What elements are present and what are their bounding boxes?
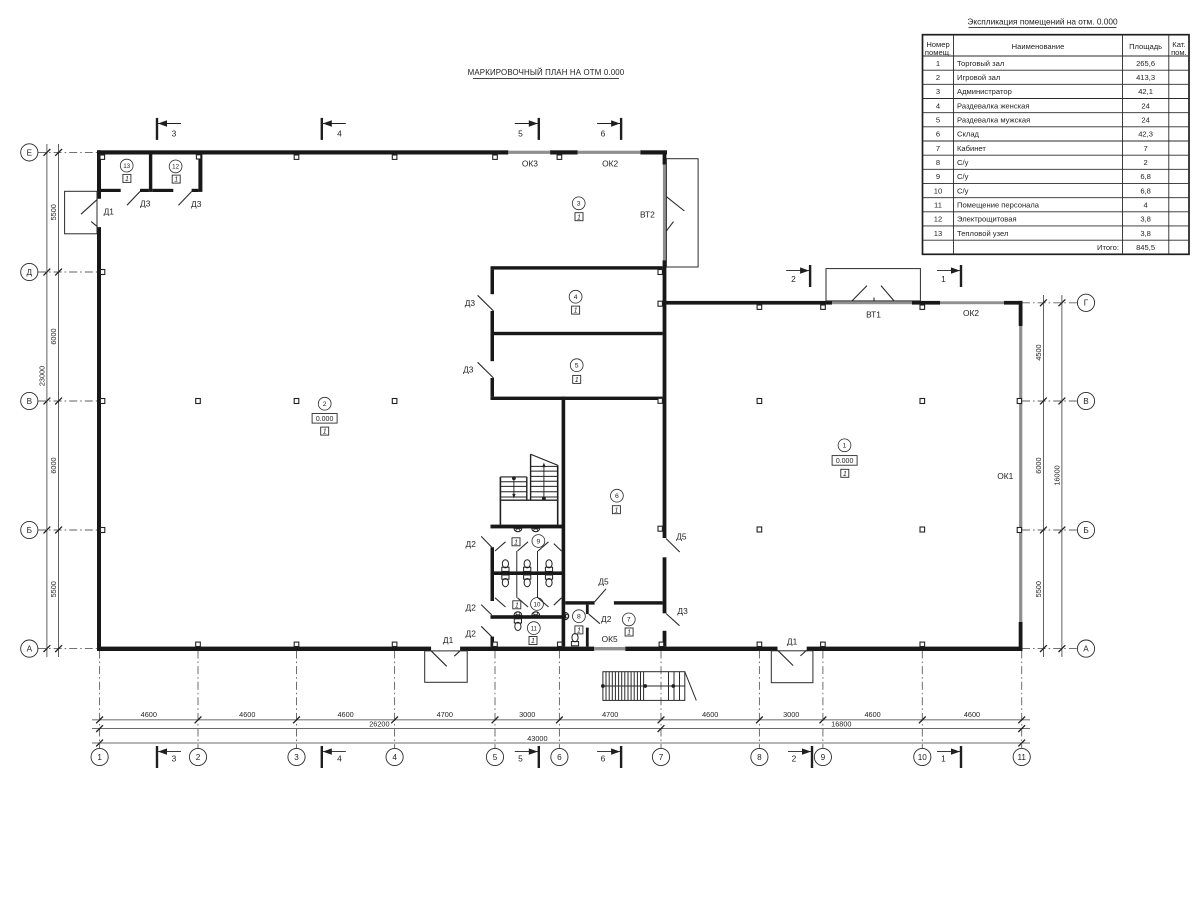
svg-text:3: 3 <box>294 753 299 762</box>
svg-text:13: 13 <box>123 163 130 170</box>
svg-text:ОК1: ОК1 <box>997 471 1013 481</box>
svg-text:4: 4 <box>936 101 940 110</box>
svg-text:1: 1 <box>941 274 946 284</box>
svg-text:6000: 6000 <box>1034 457 1043 473</box>
svg-text:С/у: С/у <box>957 172 969 181</box>
svg-text:24: 24 <box>1141 101 1149 110</box>
svg-text:23000: 23000 <box>37 366 46 386</box>
svg-text:4600: 4600 <box>337 710 353 719</box>
svg-text:Д2: Д2 <box>601 614 612 624</box>
svg-text:Кабинет: Кабинет <box>957 144 986 153</box>
svg-text:пом.: пом. <box>1171 48 1187 57</box>
svg-text:Тепловой узел: Тепловой узел <box>957 229 1008 238</box>
svg-text:Д3: Д3 <box>465 298 476 308</box>
svg-text:Администратор: Администратор <box>957 87 1012 96</box>
svg-text:12: 12 <box>934 215 942 224</box>
svg-text:Д3: Д3 <box>463 364 474 374</box>
svg-text:6: 6 <box>601 129 606 139</box>
svg-text:Б: Б <box>27 526 32 535</box>
svg-text:Площадь: Площадь <box>1129 42 1162 51</box>
svg-text:5: 5 <box>575 363 579 370</box>
svg-text:413,3: 413,3 <box>1136 73 1155 82</box>
svg-text:7: 7 <box>1143 144 1147 153</box>
svg-text:16800: 16800 <box>831 719 851 728</box>
svg-text:7: 7 <box>936 144 940 153</box>
svg-text:3: 3 <box>577 201 581 208</box>
svg-text:11: 11 <box>1017 753 1026 762</box>
svg-text:4600: 4600 <box>864 710 880 719</box>
svg-text:Торговый зал: Торговый зал <box>957 59 1004 68</box>
svg-text:6: 6 <box>601 754 606 764</box>
svg-text:8: 8 <box>936 158 940 167</box>
svg-text:4600: 4600 <box>239 710 255 719</box>
svg-text:12: 12 <box>172 164 179 171</box>
svg-text:Д3: Д3 <box>677 606 688 616</box>
svg-text:10: 10 <box>918 753 928 762</box>
svg-text:В: В <box>27 397 33 406</box>
svg-text:Д5: Д5 <box>598 576 609 586</box>
svg-text:1: 1 <box>174 177 178 184</box>
svg-text:8: 8 <box>757 753 762 762</box>
svg-text:10: 10 <box>934 186 942 195</box>
svg-text:1: 1 <box>577 214 581 221</box>
svg-text:1: 1 <box>843 443 847 450</box>
svg-text:5500: 5500 <box>1034 581 1043 597</box>
svg-text:4500: 4500 <box>1034 344 1043 360</box>
svg-text:3: 3 <box>936 87 940 96</box>
svg-text:3: 3 <box>172 754 177 764</box>
svg-text:В: В <box>1083 397 1089 406</box>
svg-text:11: 11 <box>531 625 538 632</box>
svg-text:4: 4 <box>337 129 342 139</box>
svg-text:2: 2 <box>196 753 201 762</box>
svg-text:6: 6 <box>936 130 940 139</box>
svg-text:13: 13 <box>934 229 942 238</box>
svg-text:Раздевалка мужская: Раздевалка мужская <box>957 115 1030 124</box>
svg-text:2: 2 <box>323 401 327 408</box>
svg-text:1: 1 <box>843 471 847 478</box>
svg-text:ОК5: ОК5 <box>602 634 618 644</box>
svg-text:Д1: Д1 <box>787 637 798 647</box>
svg-text:6000: 6000 <box>49 457 58 473</box>
svg-text:С/у: С/у <box>957 186 969 195</box>
svg-text:4600: 4600 <box>141 710 157 719</box>
svg-text:1: 1 <box>514 539 518 546</box>
svg-text:Игровой зал: Игровой зал <box>957 73 1000 82</box>
svg-text:42,3: 42,3 <box>1138 130 1153 139</box>
svg-text:3000: 3000 <box>783 710 799 719</box>
svg-text:265,6: 265,6 <box>1136 59 1155 68</box>
svg-text:Д2: Д2 <box>466 539 477 549</box>
svg-text:3,8: 3,8 <box>1140 229 1151 238</box>
svg-text:7: 7 <box>627 617 631 624</box>
svg-text:ВТ2: ВТ2 <box>640 210 655 220</box>
svg-text:1: 1 <box>125 176 129 183</box>
svg-text:845,5: 845,5 <box>1136 243 1155 252</box>
svg-text:6,8: 6,8 <box>1140 172 1151 181</box>
svg-text:0.000: 0.000 <box>836 458 854 465</box>
svg-text:16000: 16000 <box>1052 465 1061 485</box>
svg-text:9: 9 <box>821 753 826 762</box>
svg-text:МАРКИРОВОЧНЫЙ ПЛАН НА ОТМ 0.00: МАРКИРОВОЧНЫЙ ПЛАН НА ОТМ 0.000 <box>468 68 625 77</box>
svg-text:Раздевалка женская: Раздевалка женская <box>957 101 1029 110</box>
svg-text:4600: 4600 <box>702 710 718 719</box>
svg-text:помещ.: помещ. <box>925 48 951 57</box>
svg-text:2: 2 <box>1143 158 1147 167</box>
svg-text:Д3: Д3 <box>140 199 151 209</box>
svg-text:9: 9 <box>537 538 541 545</box>
svg-text:ВТ1: ВТ1 <box>866 309 881 319</box>
svg-text:1: 1 <box>627 630 631 637</box>
svg-text:Б: Б <box>1083 526 1088 535</box>
svg-text:ОК2: ОК2 <box>963 308 979 318</box>
svg-text:1: 1 <box>531 638 535 645</box>
svg-text:Г: Г <box>1084 299 1089 308</box>
svg-text:Электрощитовая: Электрощитовая <box>957 215 1017 224</box>
svg-text:Д1: Д1 <box>443 635 454 645</box>
svg-text:8: 8 <box>577 614 581 621</box>
svg-text:Наименование: Наименование <box>1012 42 1065 51</box>
svg-text:6: 6 <box>557 753 562 762</box>
svg-text:Д2: Д2 <box>466 603 477 613</box>
svg-text:ОК2: ОК2 <box>602 159 618 169</box>
svg-text:1: 1 <box>323 429 327 436</box>
svg-text:6,8: 6,8 <box>1140 186 1151 195</box>
svg-text:Е: Е <box>27 148 33 157</box>
svg-text:Помещение персонала: Помещение персонала <box>957 200 1040 209</box>
svg-text:4600: 4600 <box>964 710 980 719</box>
svg-text:9: 9 <box>936 172 940 181</box>
svg-text:2: 2 <box>792 754 797 764</box>
svg-text:6: 6 <box>615 493 619 500</box>
svg-text:Д2: Д2 <box>466 629 477 639</box>
svg-text:5: 5 <box>936 115 940 124</box>
svg-text:1: 1 <box>574 308 578 315</box>
svg-text:10: 10 <box>534 601 541 608</box>
svg-text:1: 1 <box>575 377 579 384</box>
svg-text:Итого:: Итого: <box>1097 243 1119 252</box>
svg-text:42,1: 42,1 <box>1138 87 1153 96</box>
svg-text:7: 7 <box>659 753 664 762</box>
svg-text:3000: 3000 <box>519 710 535 719</box>
svg-text:1: 1 <box>941 754 946 764</box>
svg-text:2: 2 <box>791 274 796 284</box>
svg-text:1: 1 <box>614 507 618 514</box>
svg-text:43000: 43000 <box>527 734 547 743</box>
svg-text:4700: 4700 <box>602 710 618 719</box>
svg-text:Д5: Д5 <box>676 531 687 541</box>
svg-text:1: 1 <box>577 628 581 635</box>
svg-text:5500: 5500 <box>49 204 58 220</box>
svg-text:4: 4 <box>1143 200 1147 209</box>
svg-text:6000: 6000 <box>49 328 58 344</box>
svg-text:26200: 26200 <box>369 719 389 728</box>
svg-text:0.000: 0.000 <box>316 416 334 423</box>
svg-text:Экспликация помещений на отм.: Экспликация помещений на отм. 0.000 <box>967 17 1118 27</box>
svg-text:5: 5 <box>518 754 523 764</box>
svg-text:1: 1 <box>936 59 940 68</box>
svg-text:4700: 4700 <box>437 710 453 719</box>
svg-text:4: 4 <box>574 294 578 301</box>
svg-text:1: 1 <box>97 753 102 762</box>
svg-text:3,8: 3,8 <box>1140 215 1151 224</box>
svg-text:4: 4 <box>337 754 342 764</box>
svg-text:5500: 5500 <box>49 581 58 597</box>
svg-text:Д1: Д1 <box>104 206 115 216</box>
svg-text:5: 5 <box>493 753 498 762</box>
svg-text:Д3: Д3 <box>191 199 202 209</box>
svg-text:24: 24 <box>1141 115 1149 124</box>
svg-text:4: 4 <box>392 753 397 762</box>
svg-text:А: А <box>27 645 33 654</box>
svg-text:11: 11 <box>934 200 942 209</box>
svg-text:С/у: С/у <box>957 158 969 167</box>
svg-text:Склад: Склад <box>957 130 980 139</box>
svg-text:1: 1 <box>515 602 519 609</box>
svg-text:3: 3 <box>172 129 177 139</box>
svg-text:А: А <box>1083 645 1089 654</box>
svg-text:5: 5 <box>518 129 523 139</box>
svg-text:ОК3: ОК3 <box>522 159 538 169</box>
svg-text:2: 2 <box>936 73 940 82</box>
svg-text:Д: Д <box>27 268 33 277</box>
